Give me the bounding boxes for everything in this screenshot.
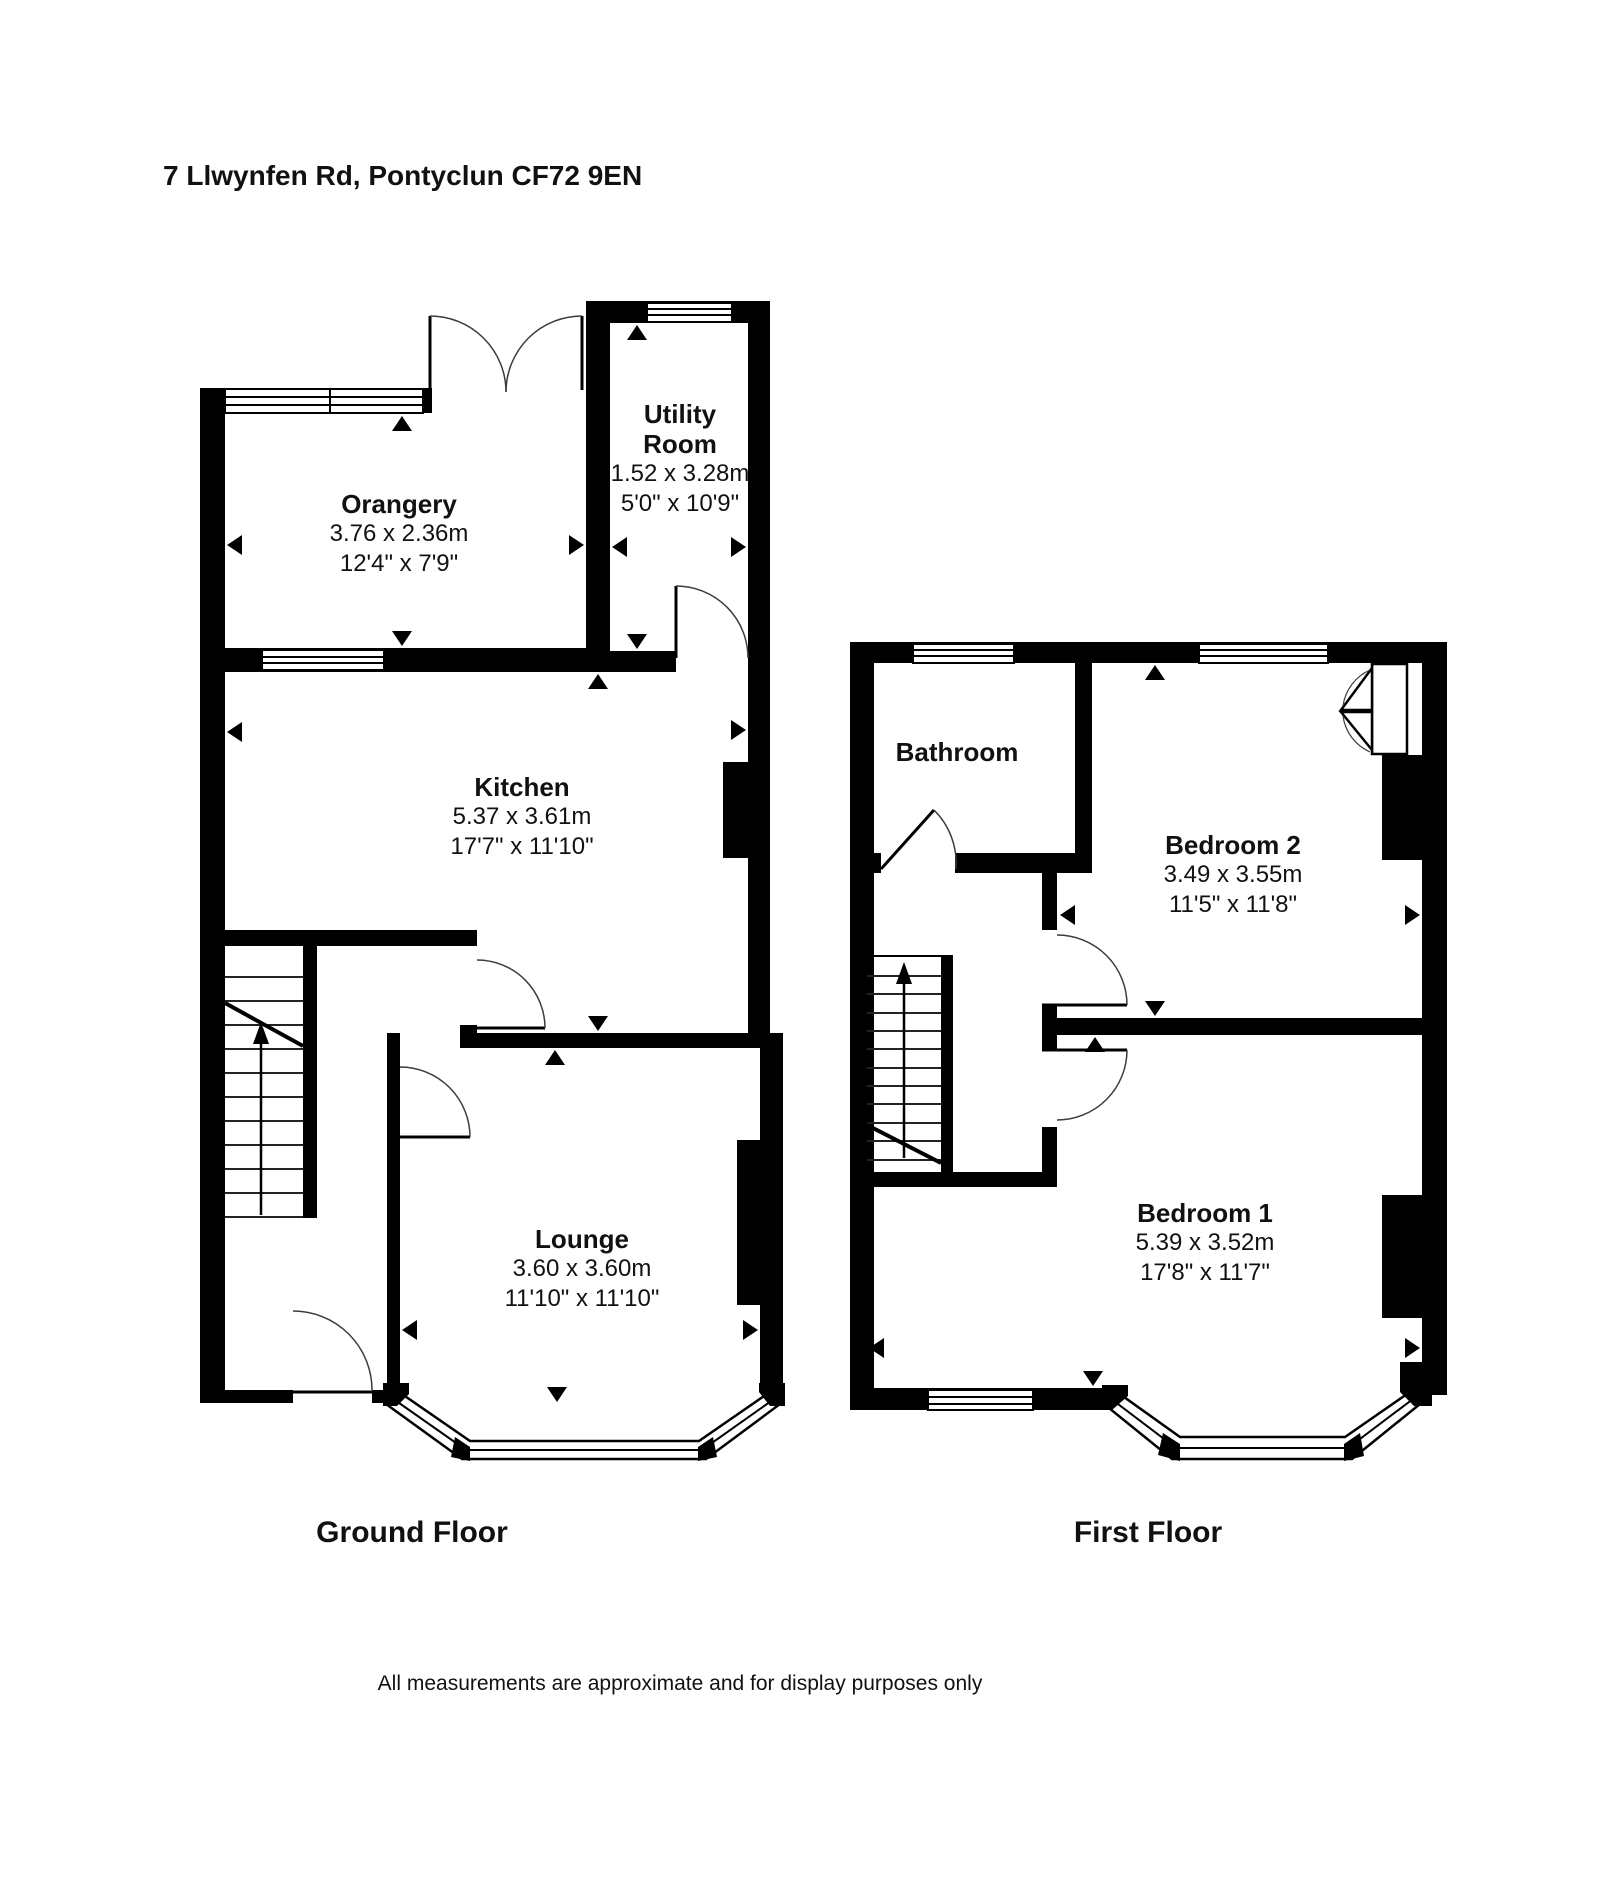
ground-floor-label: Ground Floor	[316, 1516, 508, 1550]
room-dim-imperial: 17'8" x 11'7"	[1136, 1258, 1275, 1288]
bathroom-window	[913, 644, 1014, 663]
utility-window	[647, 303, 732, 322]
utility-door	[676, 586, 748, 658]
room-dim-metric: 3.76 x 2.36m	[330, 519, 469, 549]
room-name: Kitchen	[450, 772, 593, 802]
room-name: Utility Room	[605, 399, 755, 459]
room-dim-imperial: 12'4" x 7'9"	[330, 549, 469, 579]
kitchen-door	[477, 960, 545, 1028]
lounge-bay-window	[383, 1383, 785, 1461]
bedroom2-wardrobe	[1341, 664, 1407, 754]
room-label-utility: Utility Room 1.52 x 3.28m 5'0" x 10'9"	[605, 399, 755, 519]
room-dim-imperial: 11'5" x 11'8"	[1164, 890, 1303, 920]
room-dim-imperial: 17'7" x 11'10"	[450, 832, 593, 862]
bedroom1-window	[928, 1390, 1033, 1410]
room-label-bedroom1: Bedroom 1 5.39 x 3.52m 17'8" x 11'7"	[1136, 1198, 1275, 1288]
room-dim-metric: 5.37 x 3.61m	[450, 802, 593, 832]
room-label-lounge: Lounge 3.60 x 3.60m 11'10" x 11'10"	[505, 1224, 660, 1314]
room-name: Bathroom	[896, 737, 1019, 767]
room-name: Bedroom 2	[1164, 830, 1303, 860]
floor-plan-drawing	[0, 0, 1614, 1886]
room-dim-metric: 3.49 x 3.55m	[1164, 860, 1303, 890]
orangery-french-doors	[430, 316, 582, 392]
bedroom2-door	[1042, 935, 1127, 1005]
room-dim-metric: 5.39 x 3.52m	[1136, 1228, 1275, 1258]
front-door	[293, 1311, 372, 1392]
first-floor-label: First Floor	[1074, 1516, 1222, 1550]
room-label-bathroom: Bathroom	[896, 737, 1019, 767]
bedroom1-bay-window	[1102, 1362, 1432, 1461]
orangery-window	[225, 389, 423, 413]
room-label-kitchen: Kitchen 5.37 x 3.61m 17'7" x 11'10"	[450, 772, 593, 862]
room-dim-metric: 1.52 x 3.28m	[605, 459, 755, 489]
room-name: Bedroom 1	[1136, 1198, 1275, 1228]
room-label-bedroom2: Bedroom 2 3.49 x 3.55m 11'5" x 11'8"	[1164, 830, 1303, 920]
room-dim-imperial: 5'0" x 10'9"	[605, 489, 755, 519]
room-dim-imperial: 11'10" x 11'10"	[505, 1284, 660, 1314]
room-dim-metric: 3.60 x 3.60m	[505, 1254, 660, 1284]
bedroom2-window	[1199, 644, 1328, 663]
bathroom-door	[881, 810, 956, 869]
orangery-kitchen-window	[262, 650, 384, 670]
page-title: 7 Llwynfen Rd, Pontyclun CF72 9EN	[163, 160, 642, 192]
bedroom1-door	[1042, 1050, 1127, 1120]
disclaimer-text: All measurements are approximate and for…	[378, 1672, 983, 1696]
floorplan-page: 7 Llwynfen Rd, Pontyclun CF72 9EN Orange…	[0, 0, 1614, 1886]
stairs-up-arrow-icon	[896, 962, 912, 984]
room-label-orangery: Orangery 3.76 x 2.36m 12'4" x 7'9"	[330, 489, 469, 579]
room-name: Orangery	[330, 489, 469, 519]
ground-floor-stairs	[225, 977, 303, 1217]
first-floor-stairs	[867, 962, 941, 1163]
lounge-door	[400, 1067, 470, 1137]
room-name: Lounge	[505, 1224, 660, 1254]
